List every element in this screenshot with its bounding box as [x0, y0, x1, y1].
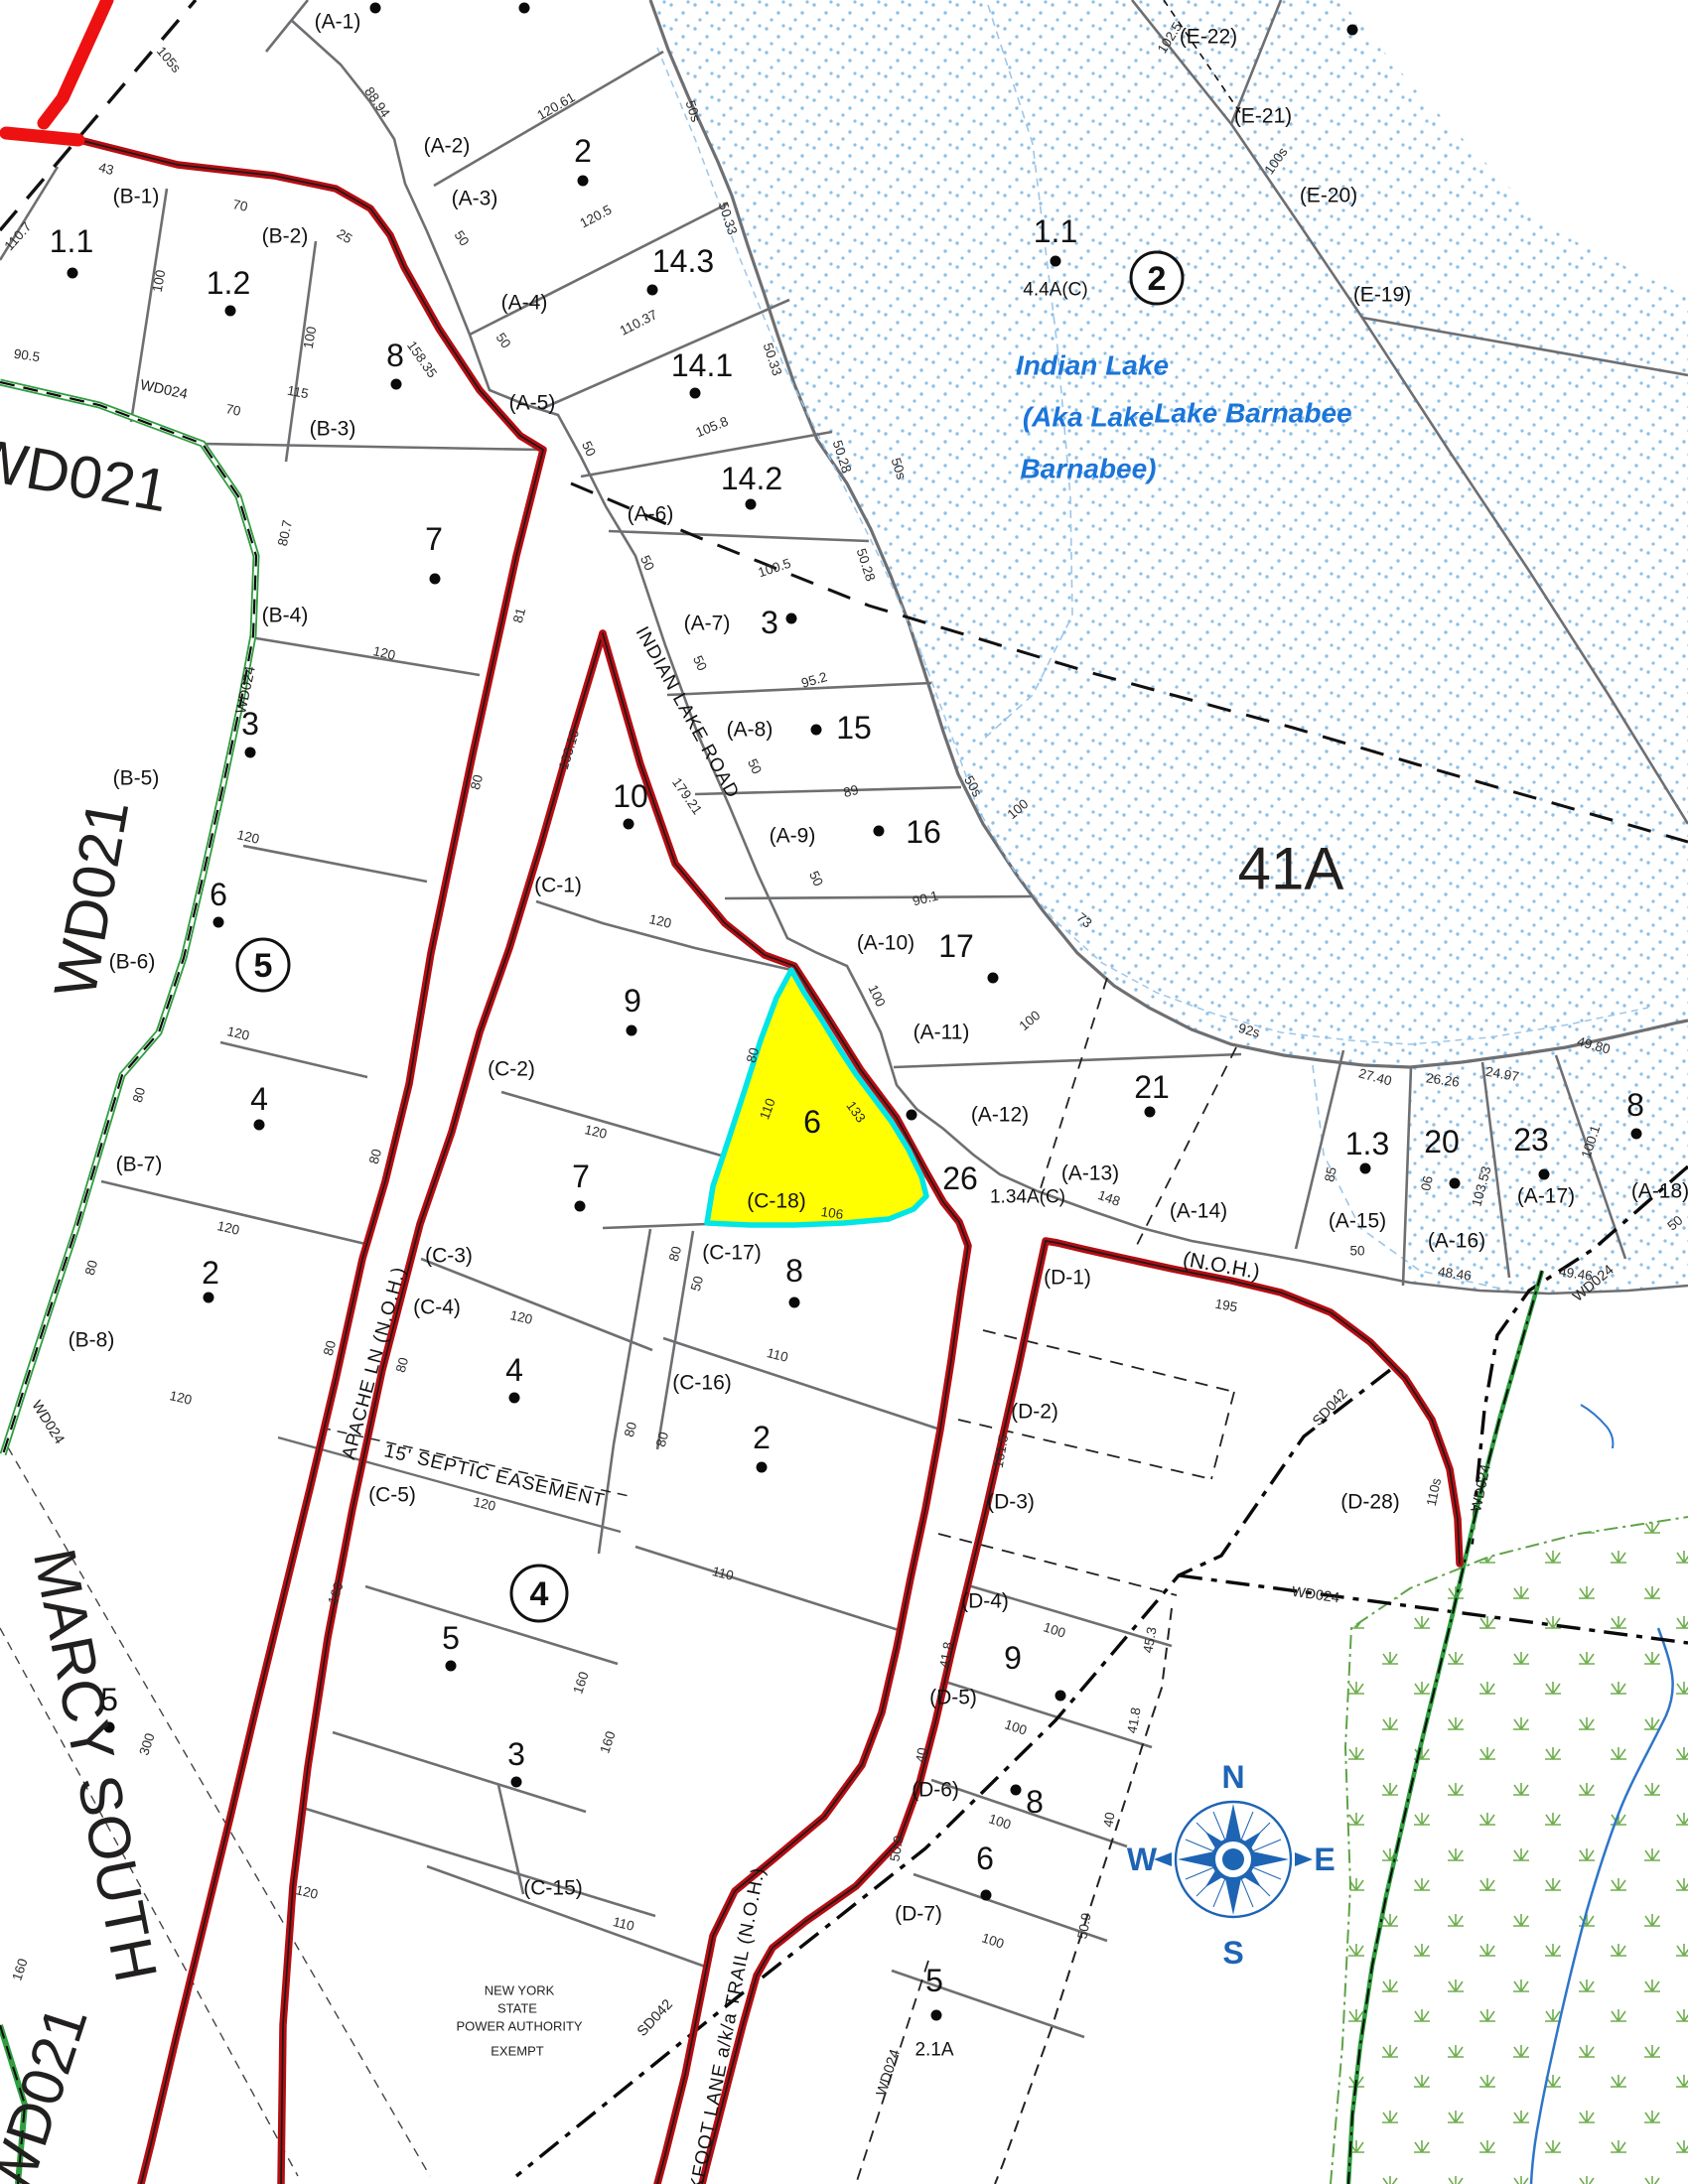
lot-id: (C-1)	[534, 875, 582, 897]
survey-dot	[1360, 1163, 1371, 1174]
survey-dot	[204, 1293, 214, 1303]
lot-id: (A-15)	[1329, 1210, 1386, 1233]
parcel-number: 3	[761, 605, 778, 640]
parcel-number: 8	[1026, 1784, 1044, 1820]
note-text: EXEMPT	[491, 2044, 544, 2059]
dimension-label: 45.3	[1140, 1626, 1159, 1654]
dimension-label: 50	[452, 228, 473, 249]
lot-id: (A-18)	[1631, 1180, 1688, 1203]
survey-dot	[931, 2010, 942, 2021]
dimension-label: 100	[1017, 1008, 1044, 1033]
district-label: WD024	[1469, 1463, 1494, 1514]
dimension-label: 80	[82, 1259, 100, 1277]
dimension-label: 120	[647, 911, 672, 931]
lot-id: (A-14)	[1170, 1200, 1227, 1223]
circled-block-number: 5	[237, 939, 289, 991]
dimension-label: 160	[570, 1670, 591, 1696]
parcel-number: 14.3	[652, 243, 714, 279]
parcel-number: 15	[836, 710, 872, 746]
dimension-label: 100	[1003, 1716, 1029, 1737]
parcel-number: 21	[1134, 1069, 1170, 1105]
survey-dot	[1347, 25, 1358, 36]
dimension-label: 160	[325, 1580, 346, 1606]
dimension-label: 50	[579, 439, 599, 459]
parcel-number: 14.2	[721, 461, 782, 496]
parcel-number: 3	[507, 1736, 525, 1772]
block-number-text: 4	[530, 1575, 549, 1613]
lot-id: (B-7)	[116, 1154, 163, 1176]
parcel-number: 9	[1004, 1640, 1022, 1676]
lot-id: (C-3)	[425, 1245, 473, 1268]
dimension-label: 105.8	[694, 414, 731, 441]
dimension-label: 148	[1096, 1187, 1122, 1209]
dimension-label: 27.40	[1357, 1065, 1394, 1088]
survey-dot	[391, 379, 402, 390]
water-label: Indian Lake	[1016, 350, 1169, 381]
parcel-number: 2	[753, 1420, 771, 1455]
survey-dot	[988, 973, 999, 984]
dimension-label: 80	[468, 773, 486, 791]
dimension-label: 81	[510, 607, 528, 624]
water-label: Lake Barnabee	[1154, 398, 1351, 429]
lot-id: (E-22)	[1180, 26, 1237, 49]
survey-dot	[245, 748, 256, 758]
lot-id: (A-8)	[727, 719, 774, 742]
survey-dot	[68, 268, 78, 279]
parcel-number: 5	[100, 1682, 118, 1717]
lot-id: (D-7)	[895, 1903, 942, 1926]
parcel-number: 1.2	[207, 265, 250, 301]
dimension-label: 110.37	[618, 307, 660, 339]
survey-dot	[446, 1661, 457, 1672]
dimension-label: 100	[301, 326, 320, 350]
lot-id: (A-3)	[452, 188, 498, 210]
highlighted-parcel-c18[interactable]	[707, 970, 926, 1225]
dimension-label: 133.10	[556, 728, 582, 771]
stream-head	[1581, 1405, 1613, 1448]
survey-dot	[1055, 1691, 1066, 1702]
lot-id: (D-5)	[929, 1687, 977, 1709]
note-text: STATE	[497, 2001, 537, 2016]
parcel-number: 2	[202, 1255, 219, 1291]
survey-dot	[225, 306, 236, 317]
survey-dot	[746, 499, 757, 510]
lot-id: (E-21)	[1234, 105, 1292, 128]
dimension-label: 120	[371, 643, 396, 663]
parcel-number: 6	[976, 1841, 994, 1876]
dimension-label: 80	[666, 1245, 684, 1263]
parcel-number: 7	[572, 1159, 590, 1194]
lot-id: (B-5)	[113, 767, 160, 790]
compass-south-label: S	[1222, 1935, 1243, 1971]
lot-id: (E-19)	[1353, 284, 1411, 307]
dimension-label: 25	[335, 226, 355, 247]
survey-dot	[1145, 1107, 1156, 1118]
parcel-map: N S W E 254 WD021WD021WD02141AMARCY SOUT…	[0, 0, 1688, 2184]
road-bright-red	[6, 0, 107, 140]
lot-id: (A-11)	[914, 1022, 970, 1044]
marsh-fill	[1331, 1517, 1688, 2184]
water-label: (Aka Lake	[1023, 402, 1154, 433]
parcel-number: 8	[785, 1253, 803, 1289]
dimension-label: 40	[913, 1746, 929, 1763]
lot-id: (A-6)	[628, 503, 674, 526]
survey-dot	[811, 725, 822, 736]
dimension-label: 100	[865, 983, 888, 1010]
dimension-label: 161.5	[991, 1433, 1012, 1469]
dimension-label: 120	[168, 1388, 193, 1408]
parcel-number: 1.1	[1034, 213, 1077, 249]
dimension-label: 300	[136, 1731, 157, 1757]
parcel-number: 4	[250, 1081, 268, 1117]
dimension-label: 120	[225, 1024, 250, 1043]
lot-id: (D-2)	[1011, 1401, 1058, 1424]
survey-dot	[213, 917, 224, 928]
dimension-label: 70	[231, 197, 249, 214]
circled-block-number: 4	[511, 1566, 567, 1621]
survey-dot	[627, 1025, 637, 1036]
parcel-number: 6	[803, 1104, 821, 1140]
parcel-number: 16	[906, 814, 941, 850]
lot-id: (E-20)	[1300, 185, 1357, 207]
zone-label: WD021	[0, 1998, 100, 2184]
district-label: WD024	[139, 377, 190, 403]
dimension-label: 85	[1322, 1165, 1339, 1183]
dimension-label: 179.21	[669, 775, 705, 817]
survey-dot	[647, 285, 658, 296]
lot-id: (C-18)	[747, 1190, 806, 1213]
lot-id: (D-3)	[987, 1491, 1035, 1514]
survey-dot	[578, 176, 589, 187]
zone-label: 41A	[1238, 836, 1344, 902]
lot-id: (D-4)	[961, 1590, 1009, 1613]
survey-dot	[254, 1120, 265, 1131]
dimension-label: 70	[224, 401, 242, 419]
parcel-area-label: 2.1A	[914, 2040, 953, 2061]
dimension-label: 120.5	[578, 202, 615, 230]
dimension-label: 50	[1349, 1244, 1364, 1259]
lot-id: (C-16)	[672, 1372, 732, 1395]
dimension-label: 110	[711, 1564, 736, 1583]
lot-id: (A-12)	[971, 1104, 1029, 1127]
note-text: NEW YORK	[485, 1983, 555, 1998]
district-label: SD042	[1310, 1386, 1351, 1430]
lot-id: (A-13)	[1061, 1162, 1119, 1185]
parcel-number: 6	[210, 877, 227, 912]
survey-dot	[575, 1201, 586, 1212]
compass-west-label: W	[1127, 1842, 1158, 1877]
dimension-label: 43	[97, 160, 115, 178]
dimension-label: 80	[622, 1421, 639, 1438]
dimension-label: 100	[987, 1811, 1013, 1832]
zone-label: MARCY SOUTH	[21, 1544, 170, 1987]
dimension-label: 41.8	[936, 1641, 955, 1669]
survey-dot	[690, 388, 701, 399]
lot-id: (A-4)	[501, 292, 548, 315]
dimension-label: 50	[745, 756, 765, 776]
dimension-label: 115	[286, 383, 310, 402]
dimension-label: 50	[688, 1275, 706, 1293]
dimension-label: 06	[1418, 1174, 1436, 1192]
dimension-label: 105s	[154, 44, 184, 75]
dimension-label: 120	[294, 1882, 319, 1902]
block-number-text: 2	[1148, 260, 1167, 298]
water-label: Barnabee)	[1021, 454, 1157, 484]
dimension-label: 80	[321, 1339, 339, 1357]
dimension-label: 160	[9, 1957, 30, 1982]
dimension-label: 80	[130, 1086, 148, 1104]
zone-label: WD021	[0, 425, 173, 525]
dimension-label: 100	[150, 269, 169, 294]
lot-id: (A-17)	[1517, 1185, 1575, 1208]
tax-map-canvas: N S W E 254 WD021WD021WD02141AMARCY SOUT…	[0, 0, 1688, 2184]
dimension-label: 195	[1214, 1297, 1239, 1315]
dimension-label: 40	[1100, 1811, 1117, 1828]
lot-id: (B-1)	[113, 186, 160, 208]
dimension-label: 88.94	[361, 84, 393, 121]
compass-rose: N S W E	[1127, 1759, 1336, 1971]
district-label: WD024	[874, 2048, 904, 2099]
survey-dot	[1011, 1785, 1022, 1796]
dimension-label: 120	[235, 827, 260, 847]
survey-dot	[624, 819, 634, 830]
block-number-text: 5	[254, 947, 273, 985]
dimension-label: 90.5	[13, 346, 41, 365]
parcel-number: 17	[938, 928, 974, 964]
dimension-label: 50	[806, 869, 826, 888]
dimension-label: 50.28	[854, 547, 879, 584]
road-indian-lake-west-edge	[603, 633, 968, 2184]
parcel-area-label: 1.34A(C)	[990, 1187, 1065, 1208]
survey-dot	[981, 1890, 992, 1901]
lot-id: (D-1)	[1044, 1267, 1091, 1290]
dimension-label: 120	[583, 1122, 608, 1142]
compass-east-label: E	[1314, 1842, 1335, 1877]
lot-id: (B-2)	[262, 225, 309, 248]
dimension-label: 100.5	[757, 556, 793, 581]
parcel-number: 14.1	[671, 347, 733, 383]
lot-id: (C-15)	[523, 1877, 583, 1900]
parcel-number: 2	[574, 133, 592, 169]
district-label: WD024	[1291, 1584, 1340, 1607]
survey-dot	[757, 1462, 768, 1473]
lot-id: (C-2)	[488, 1058, 535, 1081]
lot-id: (A-16)	[1428, 1230, 1485, 1253]
survey-dot	[511, 1777, 522, 1788]
dimension-label: 90.1	[911, 888, 939, 909]
parcel-number: 10	[613, 778, 648, 814]
dimension-label: 41.8	[1124, 1706, 1143, 1734]
parcel-number: 1.3	[1345, 1126, 1389, 1161]
dimension-label: 160	[597, 1729, 618, 1755]
circled-block-number: 2	[1131, 252, 1183, 304]
dimension-label: 110	[766, 1345, 790, 1365]
lot-id: (B-6)	[109, 951, 156, 974]
dimension-label: 120	[215, 1218, 240, 1238]
survey-dot	[786, 614, 797, 624]
lot-id: (A-2)	[424, 135, 471, 158]
parcel-number: 4	[505, 1352, 523, 1388]
survey-dot	[1539, 1169, 1550, 1180]
district-label: SD042	[634, 1996, 676, 2039]
lot-id: (A-1)	[315, 11, 361, 34]
dimension-label: 80.7	[275, 519, 295, 548]
survey-dot	[874, 826, 885, 837]
dimension-label: 100	[980, 1930, 1006, 1951]
parcel-number: 8	[1626, 1087, 1644, 1123]
parcel-number: 5	[925, 1963, 943, 1998]
lot-id: (A-7)	[684, 613, 731, 635]
dimension-label: 158.35	[404, 339, 440, 380]
survey-dot	[1450, 1178, 1461, 1189]
dimension-label: 50	[690, 653, 710, 673]
parcel-number: 1.1	[50, 223, 93, 259]
dimension-label: 100	[1042, 1619, 1067, 1640]
survey-dot	[509, 1393, 520, 1404]
note-text: POWER AUTHORITY	[456, 2019, 582, 2034]
lot-id: (C-5)	[368, 1484, 416, 1507]
lot-id: (D-28)	[1340, 1491, 1400, 1514]
lot-id: (B-8)	[69, 1329, 115, 1352]
dimension-label: 110	[612, 1914, 636, 1934]
parcel-number: 7	[425, 521, 443, 557]
compass-north-label: N	[1221, 1759, 1244, 1795]
survey-dot	[907, 1110, 917, 1121]
lot-id: (A-5)	[509, 392, 556, 415]
lot-id: (B-3)	[310, 418, 356, 441]
parcel-number: 9	[624, 983, 641, 1019]
survey-dot	[370, 3, 381, 14]
survey-dot	[1631, 1129, 1642, 1140]
parcel-number: 23	[1513, 1122, 1549, 1158]
dimension-label: 50.9	[887, 1835, 906, 1862]
survey-dot	[1051, 256, 1061, 267]
parcel-number: 26	[942, 1160, 978, 1196]
dimension-label: 80	[366, 1148, 384, 1165]
lot-id: (D-6)	[912, 1779, 959, 1802]
dimension-label: 120	[508, 1307, 533, 1327]
marsh-area	[1331, 1405, 1688, 2184]
lot-id: (A-10)	[857, 932, 914, 955]
dimension-label: 110s	[1424, 1476, 1445, 1507]
dimension-label: 50	[493, 331, 514, 351]
survey-dot	[519, 3, 530, 14]
dimension-label: 106	[820, 1204, 844, 1222]
district-label: WD024	[28, 1398, 67, 1446]
lot-id: (B-4)	[262, 605, 309, 627]
dimension-label: 80	[393, 1356, 411, 1374]
parcel-area-label: 4.4A(C)	[1023, 280, 1087, 301]
dimension-label: 80	[653, 1431, 671, 1448]
dimension-label: 89	[842, 782, 860, 800]
parcel-number: 5	[442, 1620, 460, 1656]
lot-id: (C-4)	[413, 1297, 461, 1319]
parcel-number: 8	[386, 338, 404, 373]
lot-id: (C-17)	[702, 1242, 762, 1265]
lot-id: (A-9)	[770, 825, 816, 848]
survey-dot	[430, 574, 441, 585]
survey-dot	[789, 1297, 800, 1308]
parcel-number: 20	[1424, 1124, 1460, 1160]
